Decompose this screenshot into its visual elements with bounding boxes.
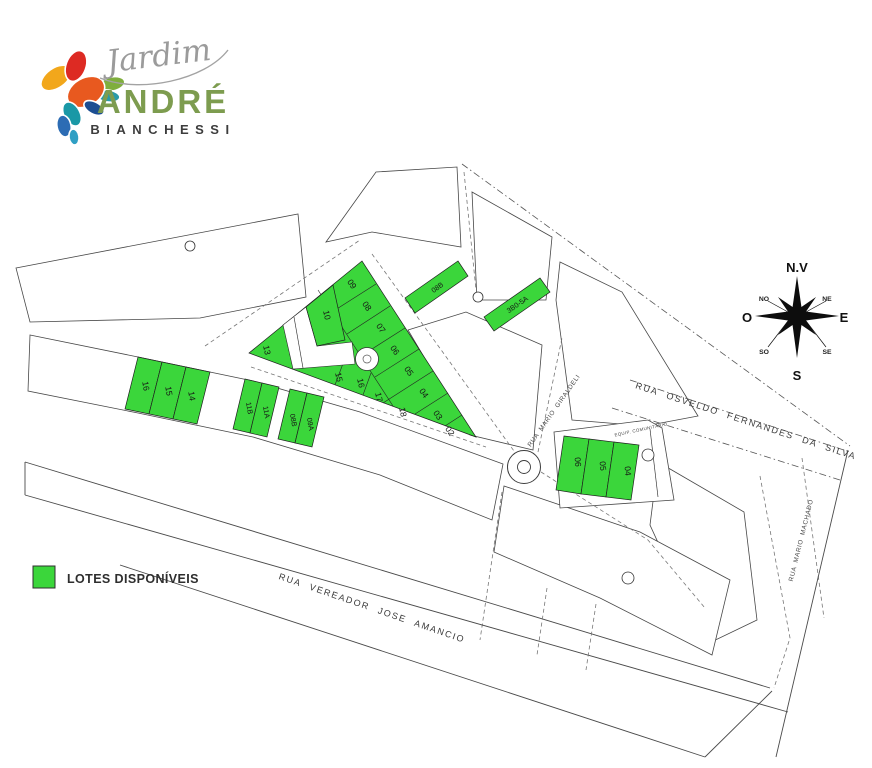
compass-label-ne: NE [822, 296, 832, 303]
quadra-marker-central [356, 348, 379, 371]
legend: LOTES DISPONÍVEIS [33, 566, 199, 588]
compass-label-no: NO [759, 296, 769, 303]
subdivision-map: 09 08 07 06 05 04 03 02 10 13 15 16 17 1… [0, 0, 872, 768]
lot-label-e04: 04 [623, 466, 634, 477]
compass-label-se: SE [822, 349, 832, 356]
crossing-dash-2 [586, 604, 596, 670]
boundary-east [776, 450, 848, 757]
road-machado-west-edge [760, 476, 790, 688]
quadra-marker-nw [185, 241, 195, 251]
lot-label-18c: 18 [397, 406, 409, 418]
lot-label-e05: 05 [598, 461, 609, 472]
lot-label-w16: 16 [140, 380, 152, 391]
street-label-machado: RUA MARIO MACHADO [788, 499, 815, 583]
quadra-marker-east [642, 449, 654, 461]
legend-available-swatch [33, 566, 55, 588]
compass-rose: N.V S O E NO NE SO SE [742, 260, 849, 383]
logo: Jardim ANDRÉ BIANCHESSI [36, 32, 235, 146]
logo-name-text: ANDRÉ [97, 83, 229, 120]
logo-surname-text: BIANCHESSI [90, 122, 235, 137]
lot-label-e06: 06 [573, 457, 584, 468]
roundabout-outer [508, 451, 541, 484]
quadra-marker-corridor [473, 292, 483, 302]
block-northwest [16, 214, 306, 322]
site-plan-page: 09 08 07 06 05 04 03 02 10 13 15 16 17 1… [0, 0, 872, 768]
street-label-amancio: RUA VEREADOR JOSE AMANCIO [277, 571, 466, 644]
compass-label-e: E [840, 310, 849, 325]
quadra-marker-south [622, 572, 634, 584]
compass-label-so: SO [759, 349, 769, 356]
lot-label-w14: 14 [186, 390, 198, 401]
legend-label: LOTES DISPONÍVEIS [67, 571, 199, 586]
compass-label-s: S [793, 368, 802, 383]
compass-label-o: O [742, 310, 752, 325]
lot-label-w15: 15 [163, 385, 175, 396]
block-north-center [326, 167, 461, 247]
crossing-dash-1 [537, 588, 547, 655]
compass-label-n: N.V [786, 260, 808, 275]
boundary-southeast-corner [705, 691, 772, 757]
